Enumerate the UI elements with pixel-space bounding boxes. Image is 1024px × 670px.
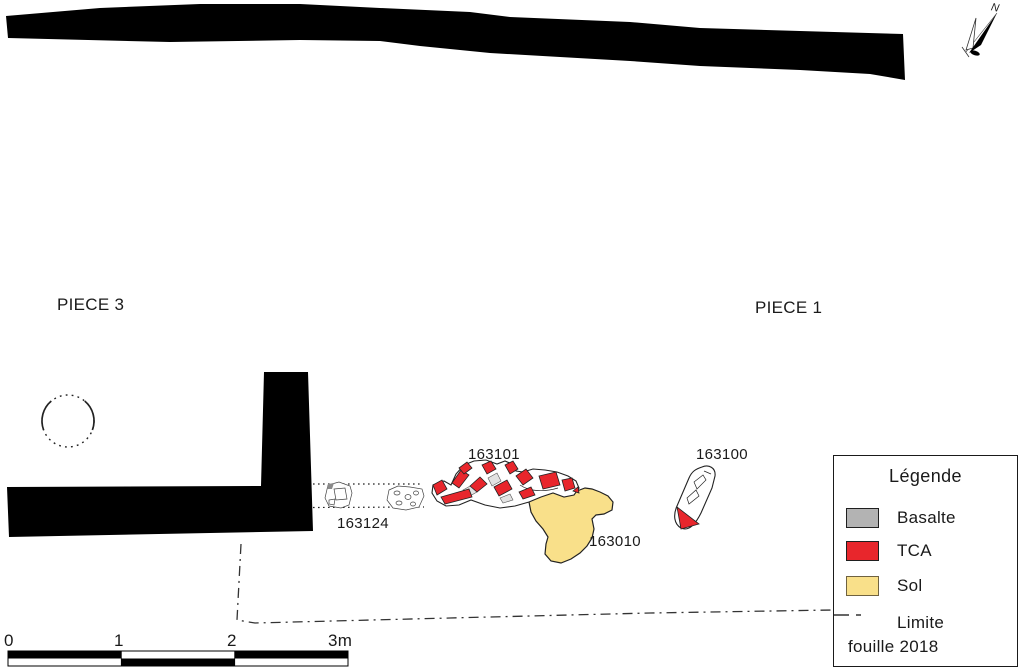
feature-label-163010: 163010 [589,533,641,550]
legend-title: Légende [834,466,1017,487]
room-label-piece-1: PIECE 1 [755,298,822,318]
scale-tick-0: 0 [4,631,14,651]
west-wall [7,372,313,537]
scale-bar [8,651,348,666]
basalte-swatch [846,508,879,528]
feature-label-163101: 163101 [468,446,520,463]
legend-label-basalte: Basalte [897,508,956,528]
limite-line-sample [834,613,868,617]
archaeological-site-plan: PIECE 3 PIECE 1 163101 163124 163010 163… [0,0,1024,670]
feature-label-163124: 163124 [337,515,389,532]
feature-163124-band [313,482,424,510]
scale-tick-2: 2 [227,631,237,651]
sol-swatch [846,576,879,596]
feature-163100-stone [675,466,715,529]
scale-tick-1: 1 [114,631,124,651]
legend-label-sol: Sol [897,576,922,596]
tca-swatch [846,541,879,561]
feature-label-163100: 163100 [696,446,748,463]
legend: Légende Basalte TCA Sol Limite fouille 2… [833,455,1018,667]
legend-label-fouille-2018: fouille 2018 [848,637,939,657]
room-label-piece-3: PIECE 3 [57,295,124,315]
legend-label-tca: TCA [897,541,932,561]
north-arrow-icon [962,13,997,57]
limite-fouille-line [237,544,833,623]
scale-tick-3m: 3m [328,631,352,651]
dotted-pit-circle [42,395,94,447]
north-wall [6,4,905,80]
legend-label-limite: Limite [897,613,944,633]
